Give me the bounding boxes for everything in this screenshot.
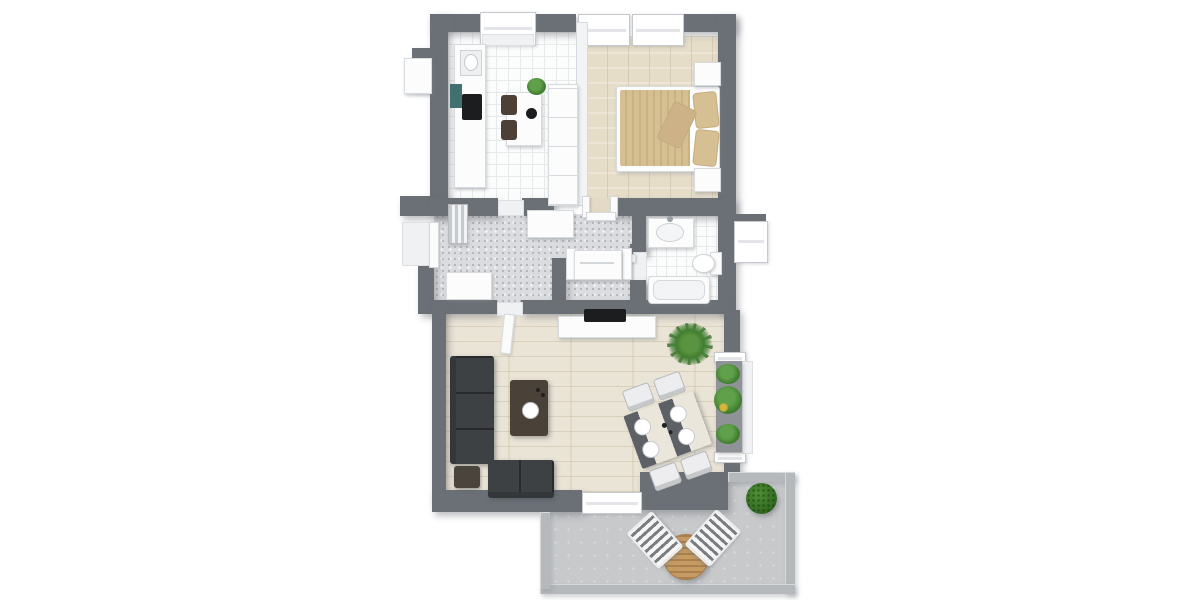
corner-sofa-horizontal: [488, 460, 554, 498]
closet-left-wall: [552, 258, 566, 306]
corner-sofa-vertical: [450, 356, 494, 464]
entry-door-leaf: [429, 222, 439, 268]
coffee-table-item-1: [536, 388, 540, 392]
washing-machine: [574, 250, 622, 280]
plate-3: [667, 403, 689, 425]
washing-machine-seam: [580, 262, 614, 264]
closet-partition-right: [622, 248, 632, 280]
teal-appliance-panel: [450, 84, 462, 108]
coffee-table-item-2: [541, 393, 545, 397]
plate-1: [632, 416, 654, 438]
hallway-radiator: [448, 204, 468, 244]
bedroom-door-leaf: [586, 212, 616, 221]
bathroom-bay-cap: [734, 214, 766, 221]
tv: [584, 309, 626, 322]
left-wall-upper: [430, 14, 448, 202]
hallway-dresser: [446, 272, 492, 300]
kitchen-black-bowl: [526, 108, 537, 119]
coffee-table-bowl: [522, 402, 539, 419]
kitchen-door-threshold: [498, 200, 524, 216]
terrace-wall-right: [785, 472, 795, 594]
entry-door-threshold: [402, 222, 432, 266]
cooktop: [462, 94, 482, 120]
hallway-sideboard: [527, 210, 574, 238]
plate-4: [676, 426, 698, 448]
bed-pillow-2: [692, 129, 720, 167]
table-centerpiece-1: [661, 422, 667, 428]
kitchen-chair-1: [501, 95, 517, 115]
kitchen-tall-cabinets: [548, 84, 578, 206]
living-room-plant: [667, 323, 713, 365]
ottoman: [454, 466, 480, 488]
top-middle-wall: [532, 14, 576, 32]
bathtub-basin: [653, 280, 705, 300]
closet-right-wall: [630, 280, 646, 306]
exterior-ledge: [404, 58, 432, 94]
table-centerpiece-2: [668, 430, 673, 435]
kitchen-plant: [527, 78, 546, 95]
bedroom-window-right: [632, 14, 684, 46]
ledge-plant-1: [716, 364, 740, 384]
nightstand-top: [694, 62, 721, 86]
bed-pillow-1: [692, 91, 720, 129]
bedroom-hall-wall: [610, 198, 736, 216]
ledge-flower-yellow: [719, 402, 728, 413]
living-left-wall: [432, 300, 446, 502]
bathroom-window-shelf: [734, 221, 768, 263]
toilet-bowl: [692, 254, 715, 273]
terrace-bush: [746, 483, 777, 514]
basin-faucet: [667, 216, 673, 222]
living-window-sill: [742, 361, 753, 454]
terrace-wall-bottom: [540, 584, 795, 594]
ledge-plant-3: [716, 424, 740, 444]
kitchen-balcony-door-sill: [482, 34, 534, 46]
sink-basin: [464, 54, 478, 71]
floorplan-canvas: [0, 0, 1200, 600]
kitchen-chair-2: [501, 120, 517, 140]
terrace-wall-left: [540, 512, 550, 589]
nightstand-bottom: [694, 168, 721, 192]
washbasin: [656, 223, 684, 242]
plate-2: [640, 439, 662, 461]
